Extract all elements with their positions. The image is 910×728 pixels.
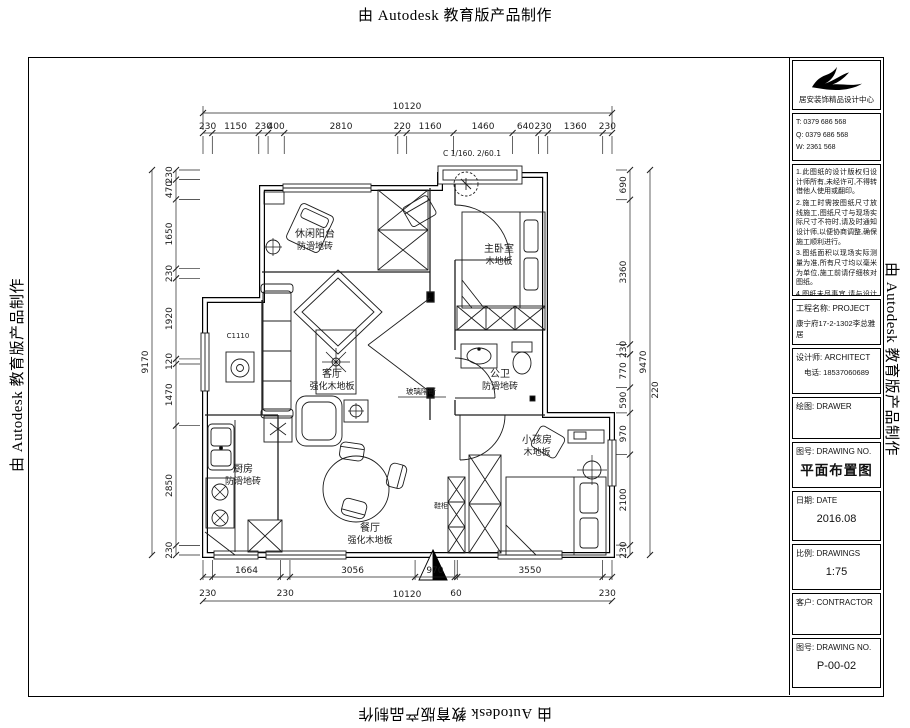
- svg-text:3056: 3056: [341, 566, 364, 576]
- cabinet-label: 鞋柜: [434, 501, 448, 510]
- dining-table-icon: [323, 456, 389, 522]
- scale-box: 比例: DRAWINGS 1:75: [792, 544, 881, 590]
- svg-text:230: 230: [534, 122, 551, 132]
- project-label: 工程名称: PROJECT: [796, 303, 877, 315]
- svg-text:9470: 9470: [639, 350, 649, 373]
- room-floor-label: 木地板: [485, 255, 512, 267]
- client-box: 客户: CONTRACTOR: [792, 593, 881, 635]
- svg-text:230: 230: [599, 122, 616, 132]
- svg-text:1470: 1470: [165, 383, 175, 406]
- svg-text:1664: 1664: [235, 566, 258, 576]
- balcony-window-icon: [283, 184, 371, 192]
- room-label: 客厅: [322, 367, 342, 380]
- shoe-cabinet-icon: [448, 477, 465, 553]
- dimension-annotations: 2301150230400281022011601460640230136023…: [141, 102, 661, 604]
- svg-text:970: 970: [619, 425, 629, 442]
- coffee-table-icon: [296, 396, 342, 446]
- date-label: 日期: DATE: [796, 495, 877, 507]
- designer-phone: 电话: 18537060689: [796, 367, 877, 378]
- kidsroom-side-window-icon: [608, 440, 616, 486]
- room-floor-label: 强化木地板: [309, 380, 354, 392]
- interior-walls: [205, 175, 545, 520]
- sheet-number: P-00-02: [796, 658, 877, 675]
- svg-text:2850: 2850: [165, 474, 175, 497]
- drawing-title: 平面布置图: [796, 461, 877, 481]
- svg-text:1920: 1920: [165, 307, 175, 330]
- svg-text:3360: 3360: [619, 260, 629, 283]
- tall-cabinet-icon: [469, 455, 501, 553]
- svg-text:1360: 1360: [564, 122, 587, 132]
- window-annotation: C1110: [227, 332, 250, 340]
- balcony-wardrobe-icon: [378, 190, 428, 270]
- project-name: 康宁府17-2-1302李总雅居: [796, 318, 877, 341]
- svg-text:230: 230: [277, 589, 294, 599]
- svg-text:2810: 2810: [330, 122, 353, 132]
- room-floor-label: 强化木地板: [347, 534, 392, 546]
- svg-text:220: 220: [394, 122, 411, 132]
- sheet-label: 图号: DRAWING NO.: [796, 642, 877, 654]
- bay-window-icon: [438, 166, 522, 184]
- floor-plan-canvas: 休闲阳台 防滑地砖 主卧室 木地板 客厅 强化木地板 公卫 防滑地砖 厨房 防滑…: [0, 0, 910, 728]
- contact-line: Q: 0379 686 568: [796, 130, 877, 143]
- notes-box: 1.此图纸的设计版权归设计师所有,未经许可,不得转借他人使用或翻印。 2.施工时…: [792, 164, 881, 296]
- window-annotation: C 1/160. 2/60.1: [443, 149, 501, 158]
- svg-text:230: 230: [199, 589, 216, 599]
- svg-text:470: 470: [165, 181, 175, 198]
- living-furniture: [226, 270, 382, 446]
- svg-text:60: 60: [450, 589, 462, 599]
- kitchen-cabinet-icon: [248, 520, 282, 552]
- svg-text:690: 690: [619, 176, 629, 193]
- master-furniture: [402, 195, 545, 330]
- room-label: 厨房: [233, 462, 253, 475]
- desk-icon: [568, 430, 604, 443]
- svg-text:640: 640: [517, 122, 534, 132]
- rug-icon: [294, 270, 382, 354]
- scale-label: 比例: DRAWINGS: [796, 548, 877, 560]
- side-table-icon: [264, 192, 284, 204]
- room-floor-label: 木地板: [523, 446, 550, 458]
- left-window-icon: [201, 333, 209, 391]
- room-label: 餐厅: [360, 521, 380, 534]
- room-floor-label: 防滑地砖: [225, 475, 261, 487]
- svg-text:970: 970: [426, 566, 443, 576]
- svg-text:230: 230: [199, 122, 216, 132]
- kids-bed-icon: [506, 477, 606, 555]
- date-box: 日期: DATE 2016.08: [792, 491, 881, 541]
- kids-door-icon: [460, 415, 505, 460]
- contact-line: T: 0379 686 568: [796, 117, 877, 130]
- floor-lamp-icon: [344, 400, 368, 422]
- room-label: 小孩房: [522, 433, 552, 446]
- svg-text:590: 590: [619, 391, 629, 408]
- sofa-icon: [261, 284, 293, 418]
- floor-drain-icon: [530, 396, 535, 401]
- note-item: 1.此图纸的设计版权归设计师所有,未经许可,不得转借他人使用或翻印。: [796, 168, 877, 197]
- svg-text:2100: 2100: [619, 488, 629, 511]
- svg-text:10120: 10120: [393, 590, 422, 600]
- room-floor-label: 防滑地砖: [297, 240, 333, 252]
- date-value: 2016.08: [796, 511, 877, 528]
- note-item: 2.施工时需按图纸尺寸放线施工,图纸尺寸与现场实际尺寸不符时,请及时通知设计师,…: [796, 199, 877, 247]
- svg-text:220: 220: [651, 381, 661, 398]
- svg-text:230: 230: [165, 541, 175, 558]
- note-item: 3.图纸面积以现场实际测量为准,所有尺寸均以毫米为单位,施工前请仔细核对图纸。: [796, 249, 877, 288]
- svg-text:400: 400: [268, 122, 285, 132]
- svg-text:770: 770: [619, 362, 629, 379]
- dining-chair-icon: [340, 497, 368, 520]
- drawing-no-label: 图号: DRAWING NO.: [796, 446, 877, 458]
- toilet-icon: [512, 342, 532, 374]
- svg-text:1160: 1160: [419, 122, 442, 132]
- drawing-title-box: 图号: DRAWING NO. 平面布置图: [792, 442, 881, 488]
- exterior-walls: [205, 175, 612, 555]
- svg-text:9170: 9170: [141, 350, 151, 373]
- ceiling-fan-icon: [577, 455, 607, 485]
- room-label: 休闲阳台: [295, 227, 335, 240]
- svg-text:230: 230: [619, 341, 629, 358]
- company-logo-icon: [808, 65, 866, 91]
- sink-icon: [461, 344, 497, 368]
- partition-label: 玻璃隔断: [406, 386, 436, 396]
- kitchen-sink-icon: [208, 424, 234, 470]
- balcony-furniture: [264, 190, 428, 270]
- svg-text:230: 230: [619, 541, 629, 558]
- room-floor-label: 防滑地砖: [482, 380, 518, 392]
- ceiling-light-icon: [264, 238, 282, 256]
- designer-box: 设计师: ARCHITECT 电话: 18537060689: [792, 348, 881, 394]
- scale-value: 1:75: [796, 564, 877, 581]
- svg-text:10120: 10120: [393, 102, 422, 112]
- washing-machine-icon: [226, 352, 254, 382]
- room-labels: 休闲阳台 防滑地砖 主卧室 木地板 客厅 强化木地板 公卫 防滑地砖 厨房 防滑…: [225, 227, 552, 546]
- logo-box: 居安装饰精品设计中心: [792, 60, 881, 110]
- designer-label: 设计师: ARCHITECT: [796, 352, 877, 364]
- client-label: 客户: CONTRACTOR: [796, 597, 877, 609]
- drawer-label: 绘图: DRAWER: [796, 401, 877, 413]
- room-label: 公卫: [490, 369, 510, 380]
- svg-text:230: 230: [165, 166, 175, 183]
- svg-text:1460: 1460: [472, 122, 495, 132]
- note-item: 4.图纸未尽事宜,请与设计师联系,双方协商解决。: [796, 290, 877, 296]
- svg-text:1650: 1650: [165, 222, 175, 245]
- drawer-box: 绘图: DRAWER: [792, 397, 881, 439]
- contact-box: T: 0379 686 568 Q: 0379 686 568 W: 2361 …: [792, 113, 881, 161]
- dining-chair-icon: [385, 462, 408, 490]
- project-box: 工程名称: PROJECT 康宁府17-2-1302李总雅居: [792, 299, 881, 345]
- svg-text:3550: 3550: [518, 566, 541, 576]
- title-block: 居安装饰精品设计中心 T: 0379 686 568 Q: 0379 686 5…: [789, 58, 883, 695]
- svg-text:1150: 1150: [224, 122, 247, 132]
- svg-text:230: 230: [599, 589, 616, 599]
- contact-line: W: 2361 568: [796, 142, 877, 155]
- kitchen-fixtures: [205, 420, 282, 555]
- living-partition-door-icon: [368, 298, 430, 392]
- company-name: 居安装饰精品设计中心: [799, 94, 874, 105]
- dining-chair-icon: [339, 441, 365, 461]
- svg-text:120: 120: [165, 353, 175, 370]
- svg-text:230: 230: [165, 265, 175, 282]
- floor-plan: 休闲阳台 防滑地砖 主卧室 木地板 客厅 强化木地板 公卫 防滑地砖 厨房 防滑…: [141, 102, 661, 604]
- master-wardrobe-icon: [457, 306, 545, 330]
- room-label: 主卧室: [484, 242, 514, 255]
- sheet-box: 图号: DRAWING NO. P-00-02: [792, 638, 881, 688]
